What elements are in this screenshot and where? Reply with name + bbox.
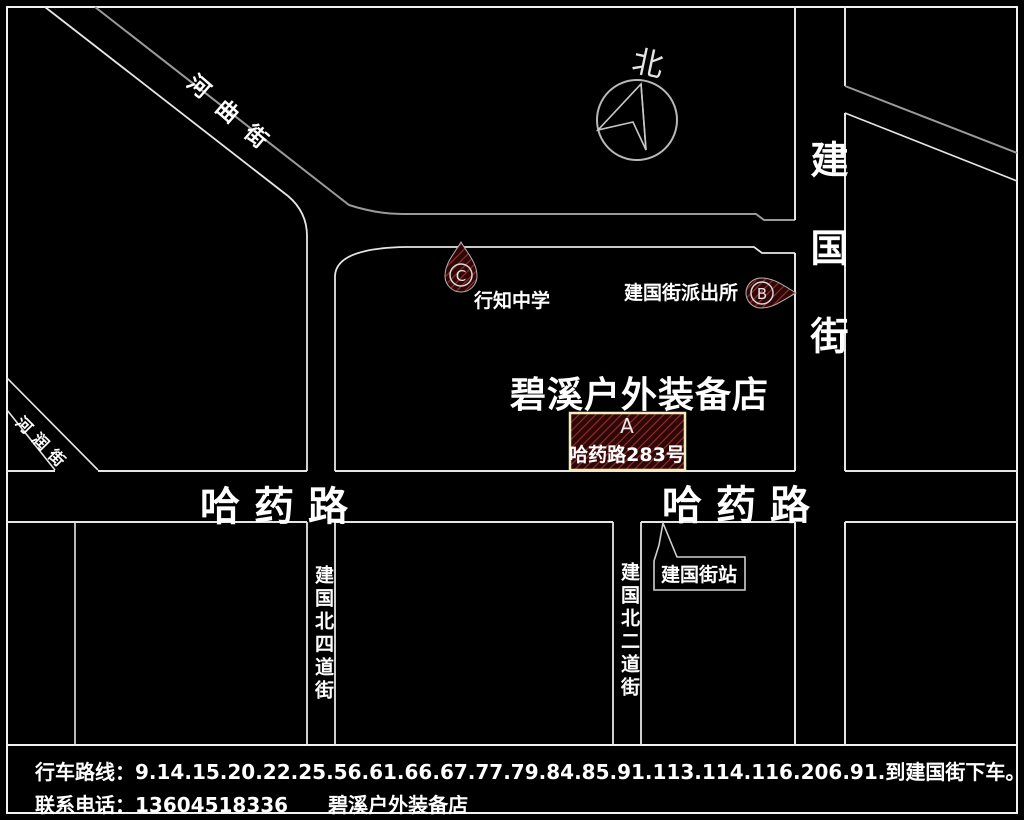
jianguo-north-4th-label: 建国北四道街 — [310, 565, 337, 703]
map-canvas: C B A 哈药路283号 建国街站 北 河曲街 河润街 建国街 哈药路 哈药路… — [0, 0, 1024, 820]
jianguo-street-label: 建国街 — [799, 140, 854, 404]
hequ-street-lower-line — [45, 7, 307, 471]
police-marker-pin: B — [746, 278, 796, 308]
route-info-text: 行车路线：9.14.15.20.22.25.56.61.66.67.77.79.… — [35, 756, 1024, 785]
hayao-road-label-right: 哈药路 — [662, 473, 824, 531]
school-marker-letter: C — [456, 267, 466, 285]
bus-stop-label: 建国街站 — [661, 563, 737, 586]
school-marker-pin: C — [445, 242, 477, 292]
store-address-box: A 哈药路283号 — [569, 413, 685, 470]
school-label: 行知中学 — [474, 286, 550, 313]
bus-stop-callout: 建国街站 — [654, 523, 745, 590]
ne-diagonal-lower-line — [845, 113, 1017, 181]
hequ-street-upper-line — [95, 7, 795, 220]
compass-north-arrow — [597, 80, 677, 160]
ne-diagonal-upper-line — [845, 86, 1017, 153]
hayao-road-label-left: 哈药路 — [200, 474, 362, 532]
police-label: 建国街派出所 — [624, 278, 738, 305]
store-address: 哈药路283号 — [569, 443, 685, 466]
police-marker-letter: B — [757, 285, 767, 303]
contact-info-text: 联系电话：13604518336 碧溪户外装备店 — [35, 789, 468, 818]
jianguo-north-2nd-label: 建国北二道街 — [616, 562, 643, 700]
store-title: 碧溪户外装备店 — [510, 366, 769, 418]
